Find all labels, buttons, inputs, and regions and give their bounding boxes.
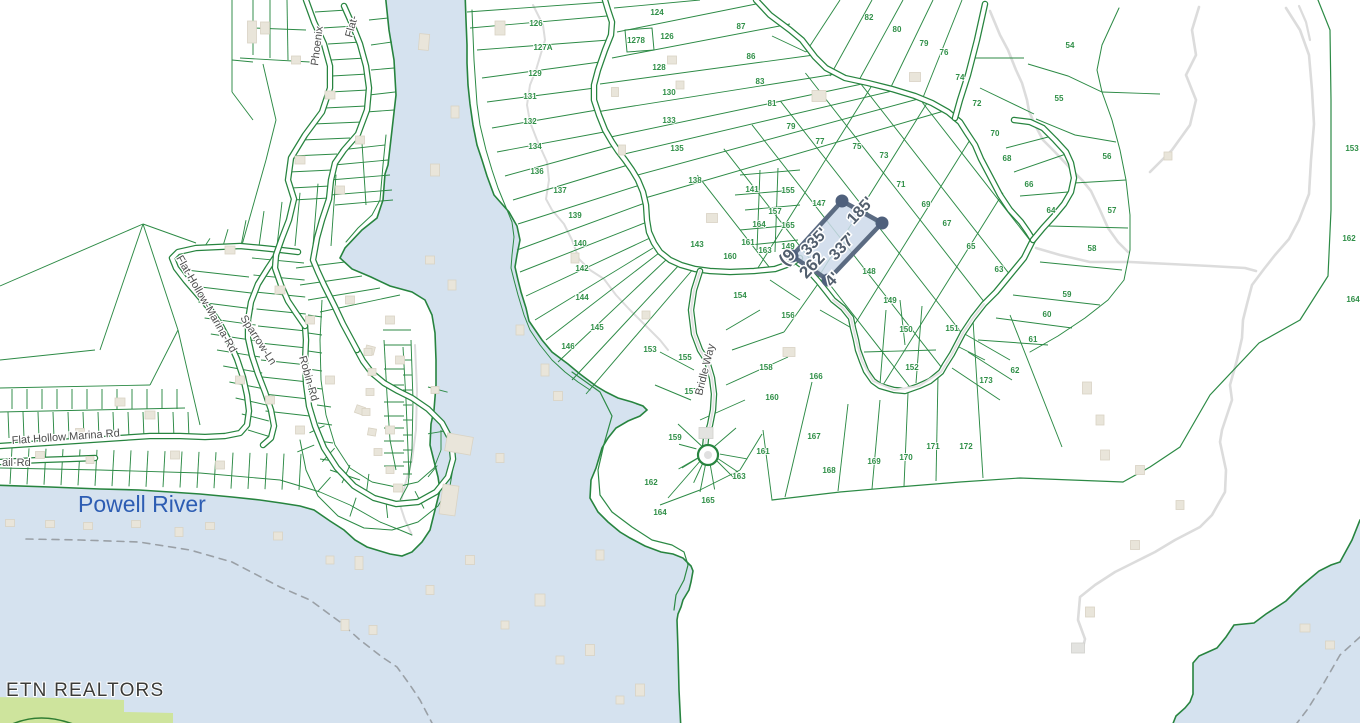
svg-text:75: 75 bbox=[853, 142, 862, 151]
svg-text:87: 87 bbox=[737, 22, 746, 31]
svg-text:83: 83 bbox=[756, 77, 765, 86]
svg-text:166: 166 bbox=[809, 372, 823, 381]
svg-text:167: 167 bbox=[807, 432, 821, 441]
svg-text:170: 170 bbox=[899, 453, 913, 462]
svg-text:150: 150 bbox=[899, 325, 913, 334]
svg-text:60: 60 bbox=[1043, 310, 1052, 319]
svg-text:77: 77 bbox=[816, 137, 825, 146]
svg-text:164: 164 bbox=[1346, 295, 1360, 304]
svg-text:67: 67 bbox=[943, 219, 952, 228]
svg-text:160: 160 bbox=[765, 393, 779, 402]
svg-text:86: 86 bbox=[747, 52, 756, 61]
svg-text:146: 146 bbox=[561, 342, 575, 351]
svg-text:161: 161 bbox=[741, 238, 755, 247]
svg-text:153: 153 bbox=[643, 345, 657, 354]
svg-text:171: 171 bbox=[926, 442, 940, 451]
svg-text:172: 172 bbox=[959, 442, 973, 451]
svg-text:ETN REALTORS: ETN REALTORS bbox=[6, 680, 164, 701]
svg-text:130: 130 bbox=[662, 88, 676, 97]
svg-text:54: 54 bbox=[1066, 41, 1075, 50]
svg-text:169: 169 bbox=[867, 457, 881, 466]
svg-text:58: 58 bbox=[1088, 244, 1097, 253]
svg-text:165: 165 bbox=[701, 496, 715, 505]
svg-text:164: 164 bbox=[752, 220, 766, 229]
svg-text:142: 142 bbox=[575, 264, 589, 273]
svg-text:155: 155 bbox=[678, 353, 692, 362]
svg-text:141: 141 bbox=[745, 185, 759, 194]
svg-text:145: 145 bbox=[590, 323, 604, 332]
svg-text:69: 69 bbox=[922, 200, 931, 209]
svg-text:165: 165 bbox=[781, 221, 795, 230]
svg-text:159: 159 bbox=[668, 433, 682, 442]
svg-text:72: 72 bbox=[973, 99, 982, 108]
svg-text:55: 55 bbox=[1055, 94, 1064, 103]
svg-text:162: 162 bbox=[1342, 234, 1356, 243]
svg-text:79: 79 bbox=[920, 39, 929, 48]
svg-text:163: 163 bbox=[758, 246, 772, 255]
svg-text:57: 57 bbox=[1108, 206, 1117, 215]
svg-text:151: 151 bbox=[945, 324, 959, 333]
svg-text:63: 63 bbox=[995, 265, 1004, 274]
svg-text:154: 154 bbox=[733, 291, 747, 300]
svg-text:136: 136 bbox=[530, 167, 544, 176]
svg-text:132: 132 bbox=[523, 117, 537, 126]
svg-text:81: 81 bbox=[768, 99, 777, 108]
svg-text:138: 138 bbox=[688, 176, 702, 185]
svg-text:ail·Rd: ail·Rd bbox=[2, 457, 31, 469]
svg-text:135: 135 bbox=[670, 144, 684, 153]
svg-text:163: 163 bbox=[732, 472, 746, 481]
svg-text:127A: 127A bbox=[533, 43, 552, 52]
svg-text:68: 68 bbox=[1003, 154, 1012, 163]
svg-text:137: 137 bbox=[553, 186, 567, 195]
svg-text:59: 59 bbox=[1063, 290, 1072, 299]
svg-text:65: 65 bbox=[967, 242, 976, 251]
svg-text:131: 131 bbox=[523, 92, 537, 101]
svg-text:134: 134 bbox=[528, 142, 542, 151]
svg-text:74: 74 bbox=[956, 73, 965, 82]
svg-text:71: 71 bbox=[897, 180, 906, 189]
svg-text:148: 148 bbox=[862, 267, 876, 276]
svg-text:82: 82 bbox=[865, 13, 874, 22]
svg-text:143: 143 bbox=[690, 240, 704, 249]
svg-text:162: 162 bbox=[644, 478, 658, 487]
svg-text:139: 139 bbox=[568, 211, 582, 220]
svg-text:129: 129 bbox=[528, 69, 542, 78]
svg-text:1278: 1278 bbox=[627, 36, 645, 45]
svg-text:Powell River: Powell River bbox=[78, 491, 206, 517]
svg-text:126: 126 bbox=[660, 32, 674, 41]
svg-text:149: 149 bbox=[883, 296, 897, 305]
svg-text:156: 156 bbox=[781, 311, 795, 320]
svg-text:161: 161 bbox=[756, 447, 770, 456]
svg-text:64: 64 bbox=[1047, 206, 1056, 215]
svg-text:144: 144 bbox=[575, 293, 589, 302]
svg-text:128: 128 bbox=[652, 63, 666, 72]
svg-text:62: 62 bbox=[1011, 366, 1020, 375]
svg-text:147: 147 bbox=[812, 199, 826, 208]
svg-text:70: 70 bbox=[991, 129, 1000, 138]
svg-text:173: 173 bbox=[979, 376, 993, 385]
svg-text:140: 140 bbox=[573, 239, 587, 248]
svg-text:152: 152 bbox=[905, 363, 919, 372]
svg-text:124: 124 bbox=[650, 8, 664, 17]
svg-text:133: 133 bbox=[662, 116, 676, 125]
svg-text:164: 164 bbox=[653, 508, 667, 517]
svg-text:76: 76 bbox=[940, 48, 949, 57]
svg-text:61: 61 bbox=[1029, 335, 1038, 344]
svg-text:157: 157 bbox=[768, 207, 782, 216]
svg-text:79: 79 bbox=[787, 122, 796, 131]
svg-text:66: 66 bbox=[1025, 180, 1034, 189]
svg-text:126: 126 bbox=[529, 19, 543, 28]
svg-text:168: 168 bbox=[822, 466, 836, 475]
svg-text:155: 155 bbox=[781, 186, 795, 195]
svg-text:153: 153 bbox=[1345, 144, 1359, 153]
svg-text:56: 56 bbox=[1103, 152, 1112, 161]
svg-text:73: 73 bbox=[880, 151, 889, 160]
svg-text:160: 160 bbox=[723, 252, 737, 261]
svg-text:80: 80 bbox=[893, 25, 902, 34]
svg-text:158: 158 bbox=[759, 363, 773, 372]
